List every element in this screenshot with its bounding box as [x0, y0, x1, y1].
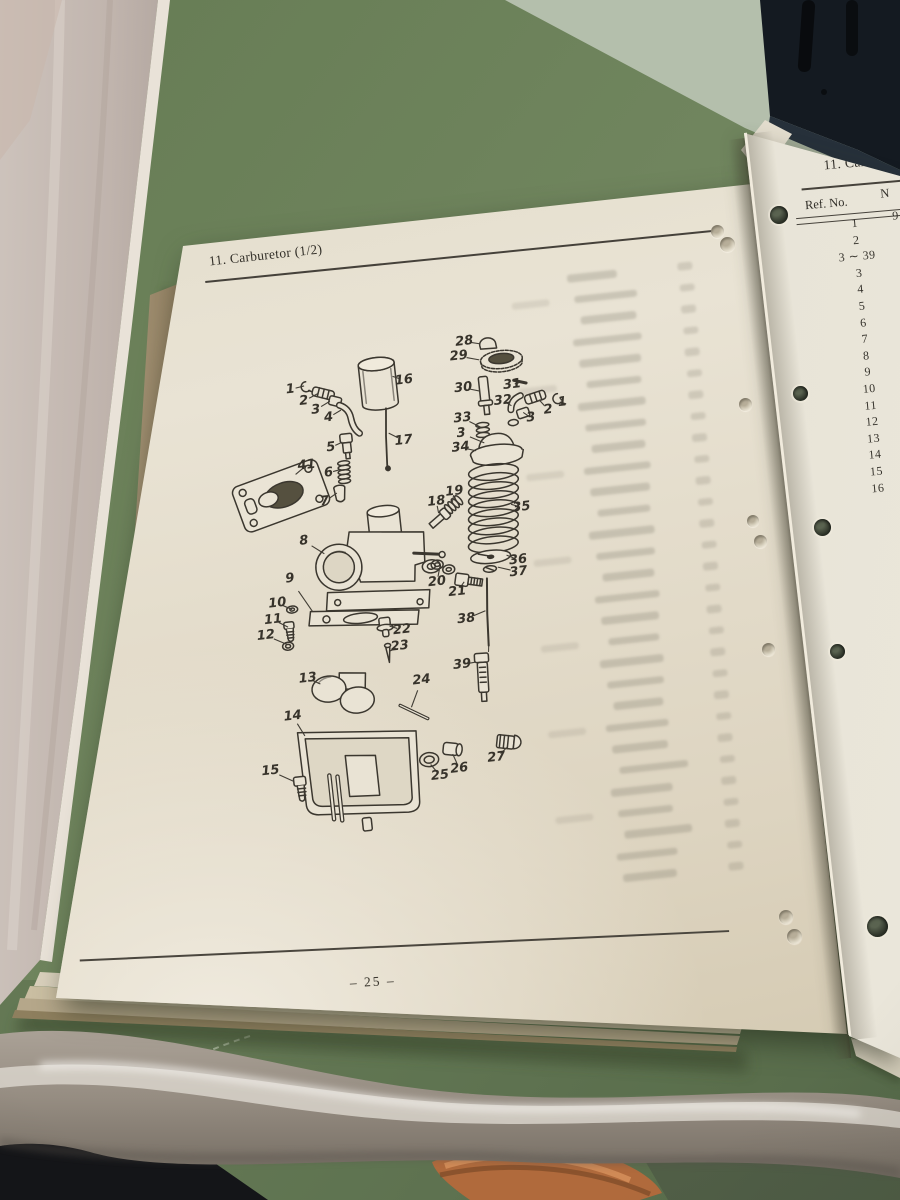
- punch-hole: [739, 398, 752, 411]
- punch-hole: [720, 237, 735, 252]
- ref-no-column: 123 ∼ 39345678910111213141516: [760, 124, 900, 150]
- punch-hole: [814, 519, 831, 536]
- right-section-title: 11. Carbure: [823, 152, 892, 174]
- punch-hole: [754, 535, 767, 548]
- punch-hole: [867, 916, 888, 937]
- punch-hole: [762, 643, 775, 656]
- col-header-part-no: N: [880, 186, 890, 202]
- col-header-ref-no: Ref. No.: [804, 195, 848, 214]
- photo-scene: F6 11. Carburetor (1/2): [0, 0, 900, 1200]
- part-number-fragment: 9: [892, 208, 899, 223]
- punch-hole: [787, 929, 802, 944]
- punch-hole: [747, 515, 759, 527]
- punch-hole: [779, 910, 793, 924]
- punch-hole: [830, 644, 845, 659]
- punch-hole: [711, 225, 724, 238]
- punch-hole: [793, 386, 808, 401]
- ref-no-row: 16: [847, 478, 900, 498]
- punch-hole: [770, 206, 788, 224]
